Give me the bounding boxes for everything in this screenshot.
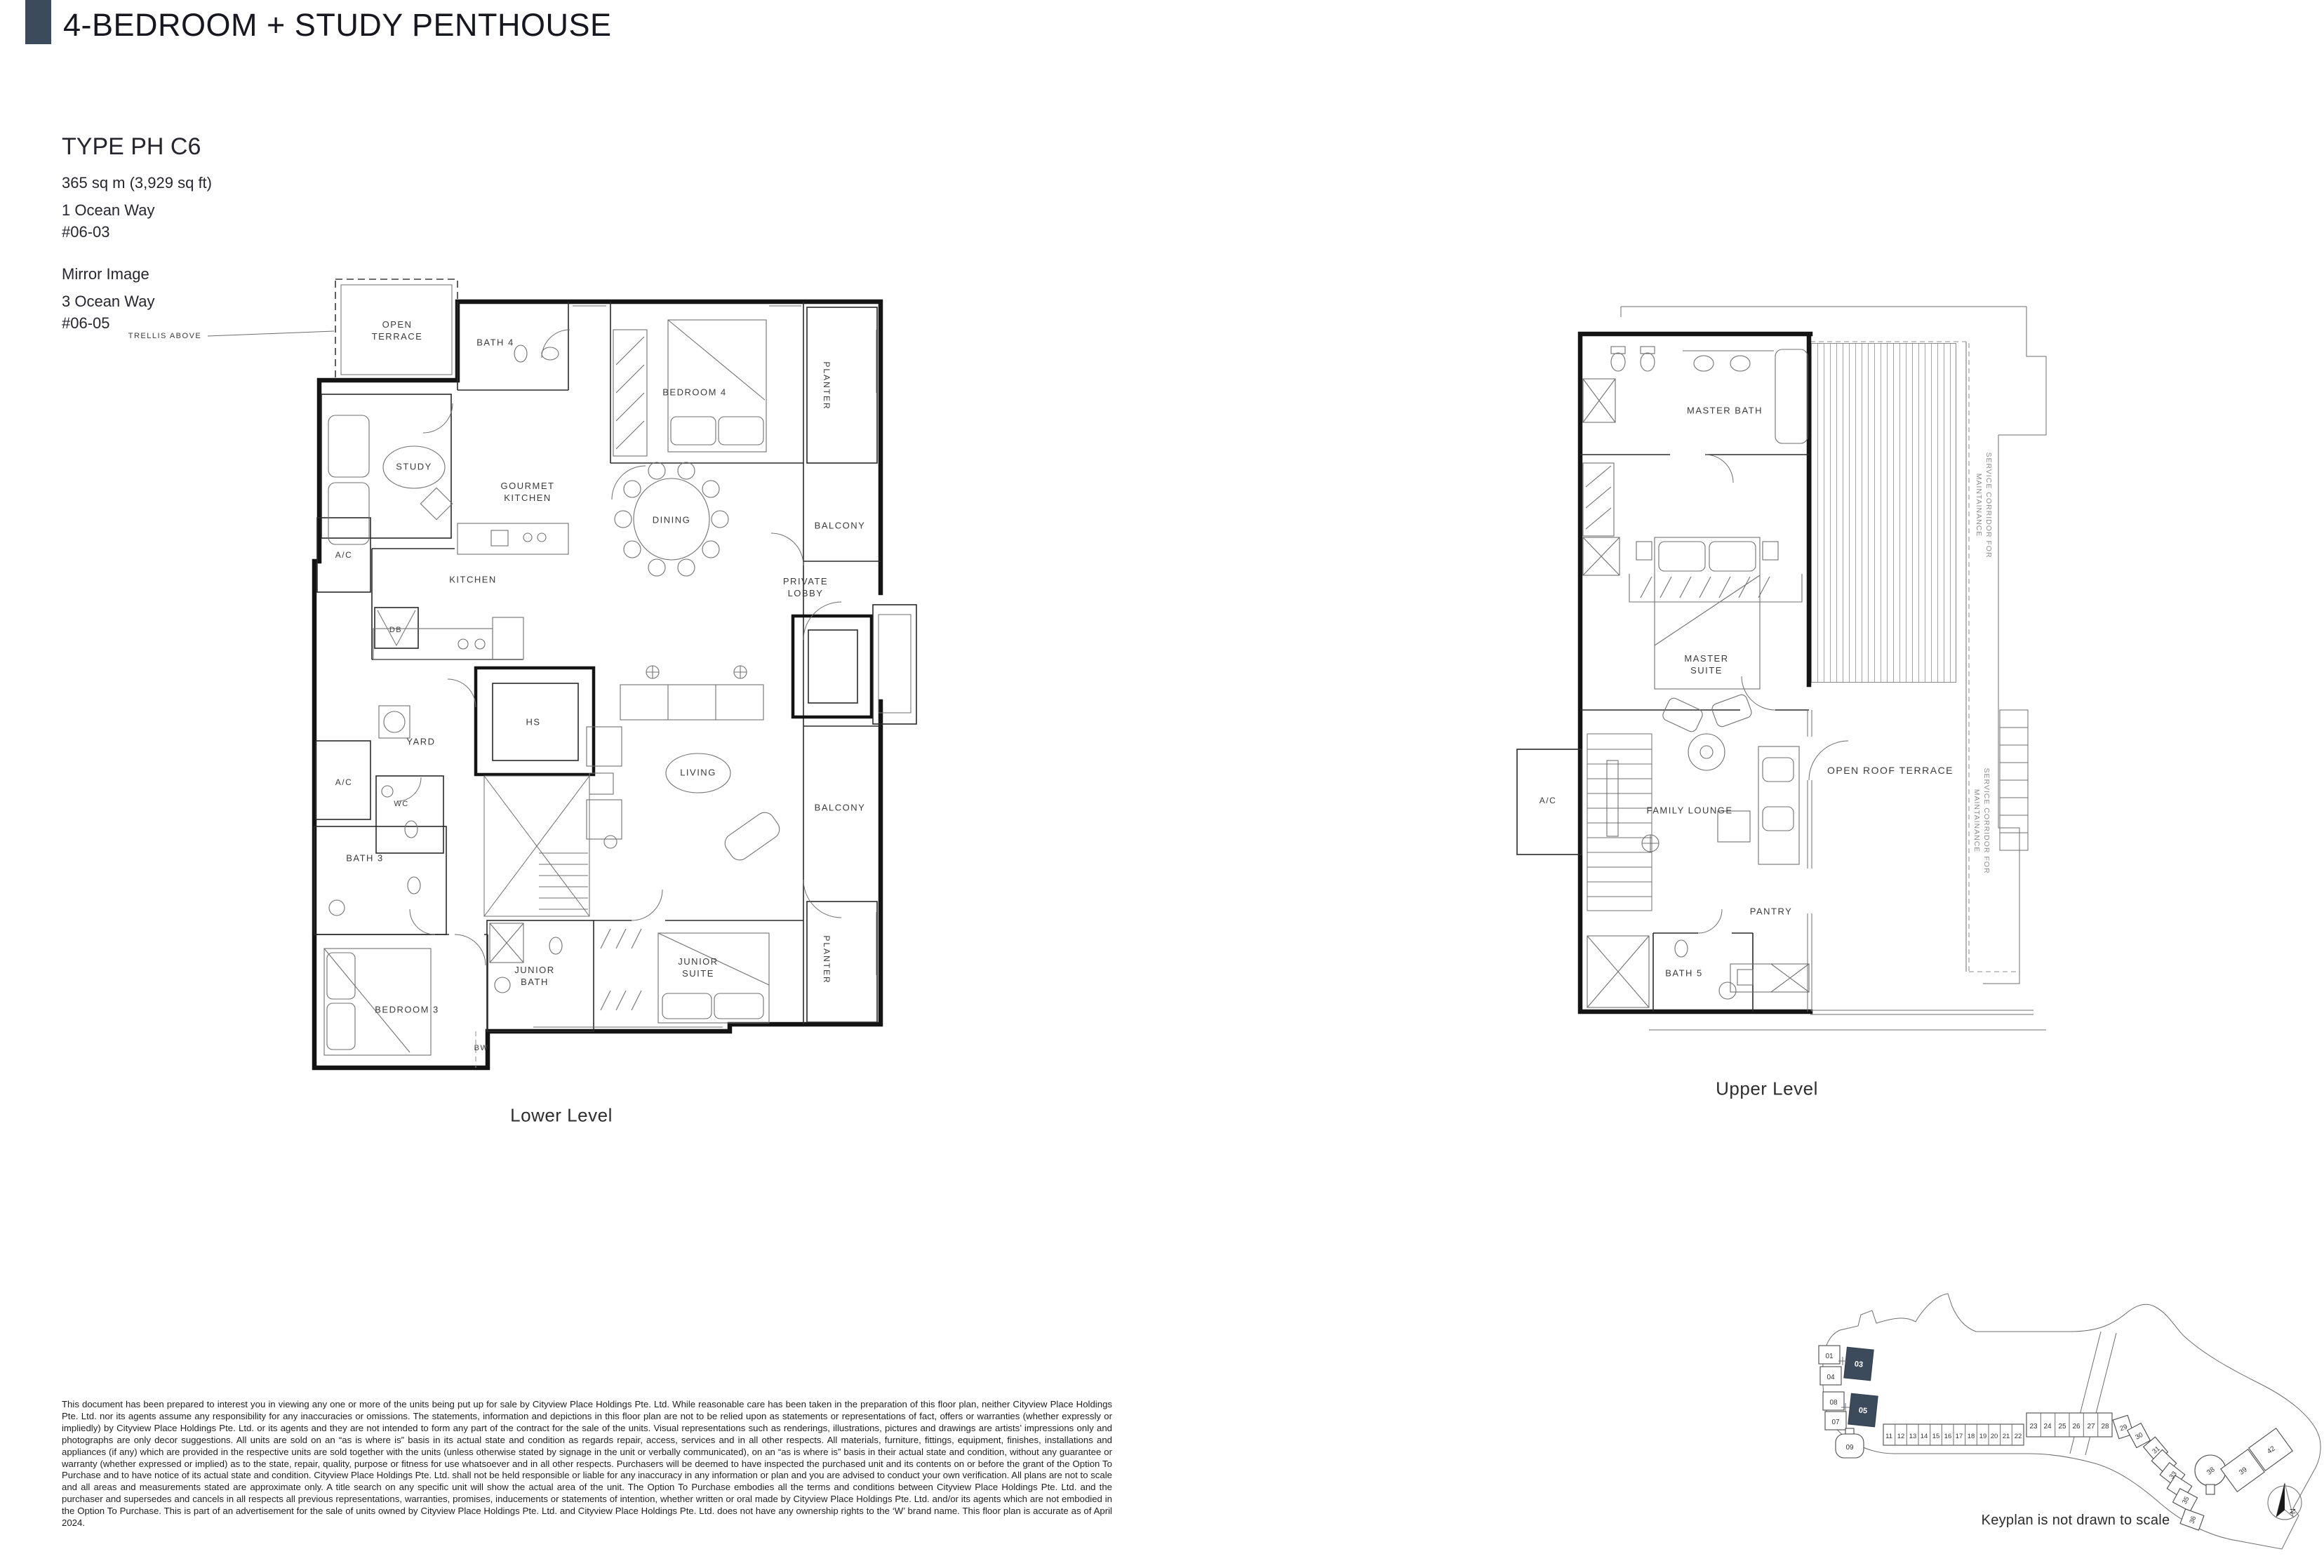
room-label-dining: DINING [653, 515, 691, 527]
room-label-wc: WC [394, 799, 408, 809]
unit-address-2: 3 Ocean Way [62, 293, 154, 311]
keyplan-block-05: 05 [1858, 1406, 1867, 1415]
keyplan-block-11: 11 [1885, 1433, 1892, 1440]
room-label-bedroom-4: BEDROOM 4 [661, 387, 728, 399]
trellis-above-label: TRELLIS ABOVE [128, 331, 201, 341]
north-arrow-icon: N [2268, 1483, 2302, 1520]
keyplan-block-16: 16 [1944, 1433, 1952, 1440]
room-label-master-bath: MASTER BATH [1687, 406, 1763, 417]
unit-number-2: #06-05 [62, 314, 110, 333]
keyplan-block-17: 17 [1956, 1433, 1963, 1440]
room-label-private-lobby: PRIVATE LOBBY [774, 576, 837, 600]
keyplan-block-19: 19 [1979, 1433, 1987, 1440]
room-label-pantry: PANTRY [1750, 906, 1793, 918]
room-label-yard: YARD [406, 737, 435, 749]
keyplan-block-01: 01 [1825, 1353, 1834, 1360]
lower-doors [397, 330, 841, 965]
keyplan-block-23: 23 [2029, 1423, 2038, 1430]
room-label-balcony-top: BALCONY [815, 521, 866, 532]
room-label-planter-top: PLANTER [822, 361, 832, 410]
room-label-open-roof-terrace: OPEN ROOF TERRACE [1827, 764, 1954, 777]
north-label: N [2289, 1508, 2297, 1514]
lower-level-caption: Lower Level [510, 1105, 613, 1127]
service-corridor-label-2: SERVICE CORRIDOR FOR MAINTAINANCE [1972, 761, 1991, 880]
keyplan-block-14: 14 [1921, 1433, 1928, 1440]
room-label-study: STUDY [396, 462, 432, 474]
lower-walls [208, 279, 916, 1068]
keyplan-block-20: 20 [1991, 1433, 1998, 1440]
mirror-image-label: Mirror Image [62, 265, 149, 283]
keyplan-block-15: 15 [1932, 1433, 1940, 1440]
room-label-hs: HS [526, 717, 540, 729]
room-label-ac-upper: A/C [1540, 796, 1557, 807]
service-corridor-label-1: SERVICE CORRIDOR FOR MAINTAINANCE [1974, 445, 1994, 565]
unit-area: 365 sq m (3,929 sq ft) [62, 174, 212, 192]
room-label-family-lounge: FAMILY LOUNGE [1646, 805, 1732, 817]
keyplan-block-04: 04 [1827, 1374, 1835, 1381]
keyplan-block-12: 12 [1897, 1433, 1905, 1440]
room-label-gourmet-kitchen: GOURMET KITCHEN [490, 481, 565, 504]
unit-number-1: #06-03 [62, 223, 110, 241]
keyplan-block-22: 22 [2015, 1433, 2022, 1440]
room-label-bath-5: BATH 5 [1665, 968, 1703, 980]
keyplan-block-21: 21 [2003, 1433, 2010, 1440]
keyplan-block-24: 24 [2043, 1423, 2052, 1430]
keyplan-block-25: 25 [2058, 1423, 2066, 1430]
room-label-bedroom-3: BEDROOM 3 [373, 1005, 441, 1017]
title-accent-bar [25, 0, 51, 44]
keyplan-block-18: 18 [1968, 1433, 1975, 1440]
room-label-planter-bottom: PLANTER [822, 935, 832, 984]
room-label-master-suite: MASTER SUITE [1676, 653, 1737, 677]
keyplan-block-26: 26 [2072, 1423, 2081, 1430]
room-label-bath-3: BATH 3 [346, 853, 384, 865]
keyplan-block-09: 09 [1845, 1444, 1854, 1452]
upper-level-floorplan [1502, 281, 2063, 1101]
upper-doors [1698, 455, 1848, 933]
disclaimer-text: This document has been prepared to inter… [62, 1399, 1112, 1529]
keyplan-blocks: 01 04 03 08 07 05 09 11 12 13 14 15 16 1… [1819, 1346, 2292, 1530]
keyplan-block-27: 27 [2087, 1423, 2095, 1430]
unit-type-label: TYPE PH C6 [62, 133, 201, 161]
room-label-ac-bottom: A/C [335, 777, 353, 789]
room-label-junior-bath: JUNIOR BATH [509, 965, 560, 989]
keyplan-block-13: 13 [1909, 1433, 1917, 1440]
room-label-db: DB [389, 625, 402, 635]
keyplan-caption: Keyplan is not drawn to scale [1982, 1511, 2170, 1529]
upper-level-caption: Upper Level [1716, 1078, 1818, 1100]
unit-address-1: 1 Ocean Way [62, 201, 154, 220]
room-label-open-terrace: OPEN TERRACE [365, 319, 429, 343]
lower-level-floorplan [295, 267, 898, 1080]
keyplan-block-08: 08 [1829, 1399, 1838, 1407]
floorplan-brochure-page: { "header": { "title": "4-BEDROOM + STUD… [0, 0, 2324, 1568]
room-label-kitchen: KITCHEN [449, 575, 497, 587]
room-label-living: LIVING [680, 768, 716, 779]
room-label-ac-top: A/C [335, 550, 353, 561]
keyplan-block-07: 07 [1831, 1419, 1840, 1426]
room-label-junior-suite: JUNIOR SUITE [673, 956, 723, 980]
keyplan-block-03: 03 [1854, 1360, 1863, 1369]
room-label-bath-4: BATH 4 [476, 337, 514, 349]
lower-furniture [324, 320, 783, 1068]
page-title: 4-BEDROOM + STUDY PENTHOUSE [63, 7, 612, 43]
keyplan-block-28: 28 [2101, 1423, 2109, 1430]
room-label-balcony-bottom: BALCONY [815, 803, 866, 815]
room-label-bw: BW [474, 1043, 489, 1053]
